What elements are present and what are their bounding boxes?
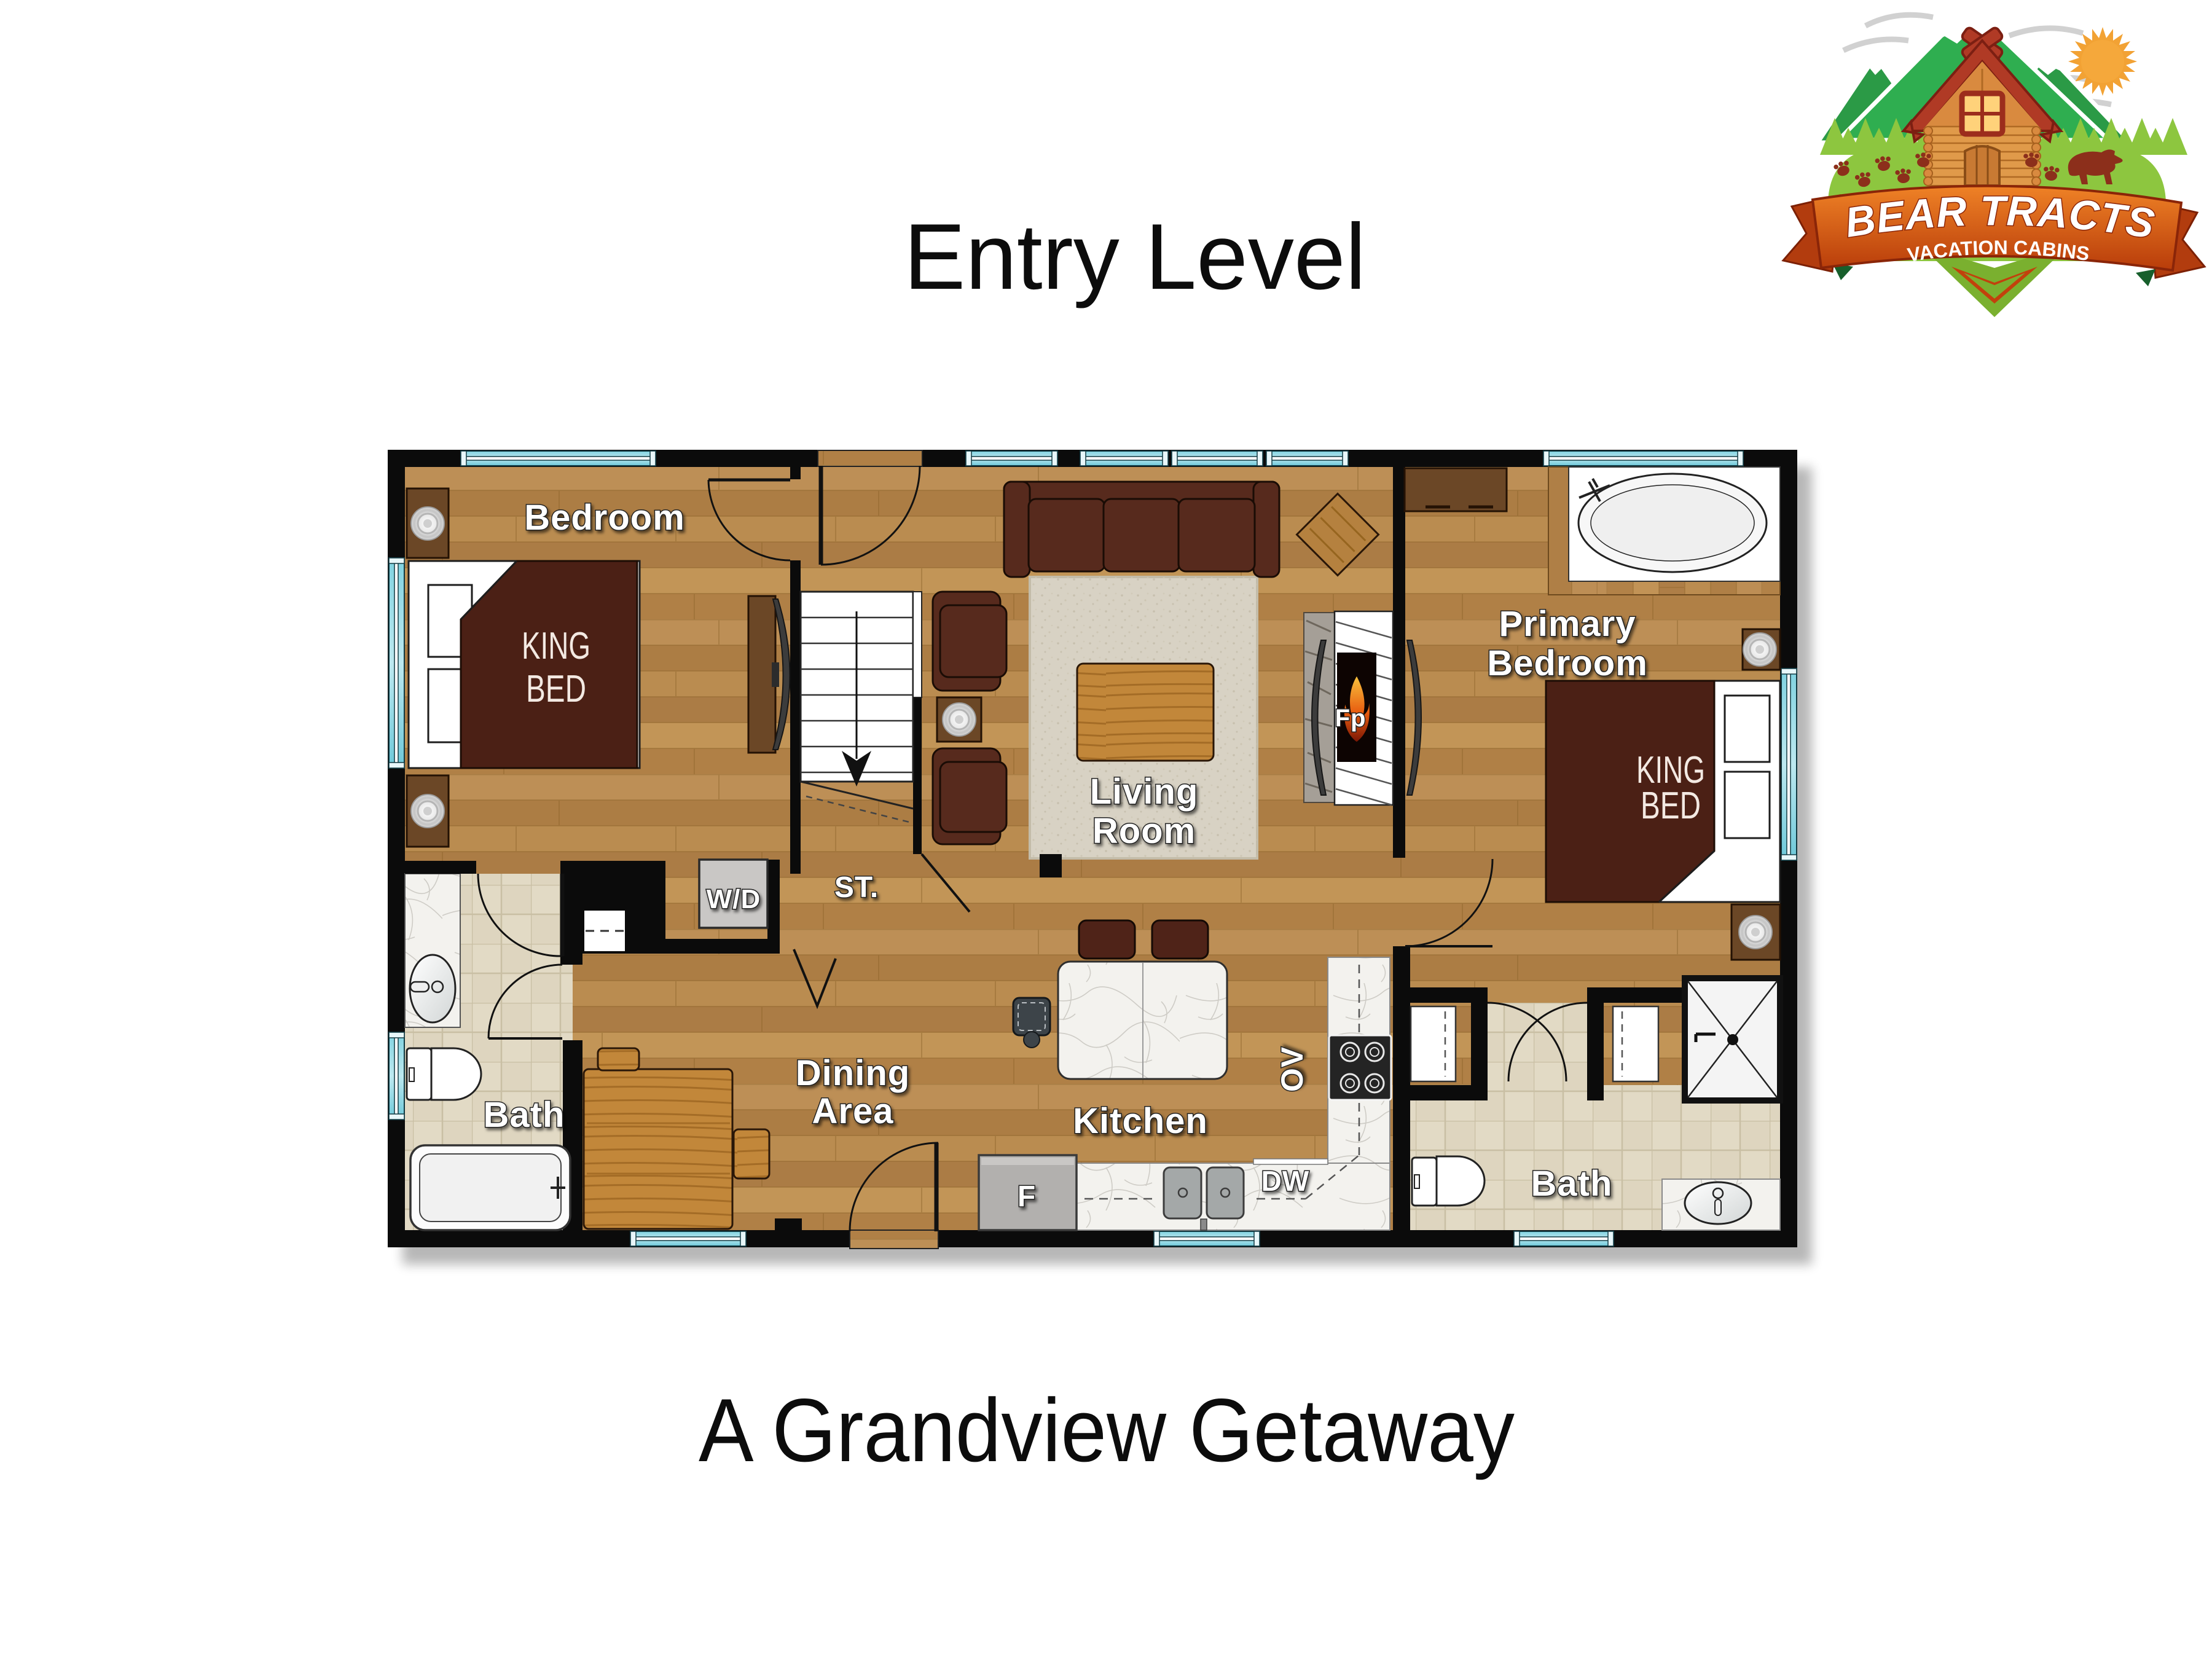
svg-text:Room: Room xyxy=(1092,811,1196,851)
svg-text:ST.: ST. xyxy=(834,871,879,904)
svg-text:BED: BED xyxy=(526,668,586,710)
svg-text:Fp: Fp xyxy=(1335,705,1367,732)
svg-text:OV: OV xyxy=(1275,1046,1309,1092)
svg-text:Living: Living xyxy=(1090,772,1199,812)
svg-text:KING: KING xyxy=(522,625,590,667)
svg-text:Entry Level: Entry Level xyxy=(904,205,1366,309)
svg-text:Bedroom: Bedroom xyxy=(1487,643,1648,683)
svg-text:F: F xyxy=(1018,1180,1036,1213)
svg-text:W/D: W/D xyxy=(707,884,761,914)
svg-text:A Grandview Getaway: A Grandview Getaway xyxy=(699,1380,1515,1480)
svg-text:Bath: Bath xyxy=(484,1095,565,1135)
svg-text:DW: DW xyxy=(1261,1165,1310,1197)
svg-text:Area: Area xyxy=(812,1091,894,1131)
svg-text:Dining: Dining xyxy=(796,1053,910,1093)
svg-text:Primary: Primary xyxy=(1499,604,1636,644)
svg-text:Bath: Bath xyxy=(1531,1164,1613,1204)
svg-text:BED: BED xyxy=(1641,785,1701,827)
svg-text:Kitchen: Kitchen xyxy=(1073,1101,1208,1141)
svg-text:Bedroom: Bedroom xyxy=(524,498,685,538)
